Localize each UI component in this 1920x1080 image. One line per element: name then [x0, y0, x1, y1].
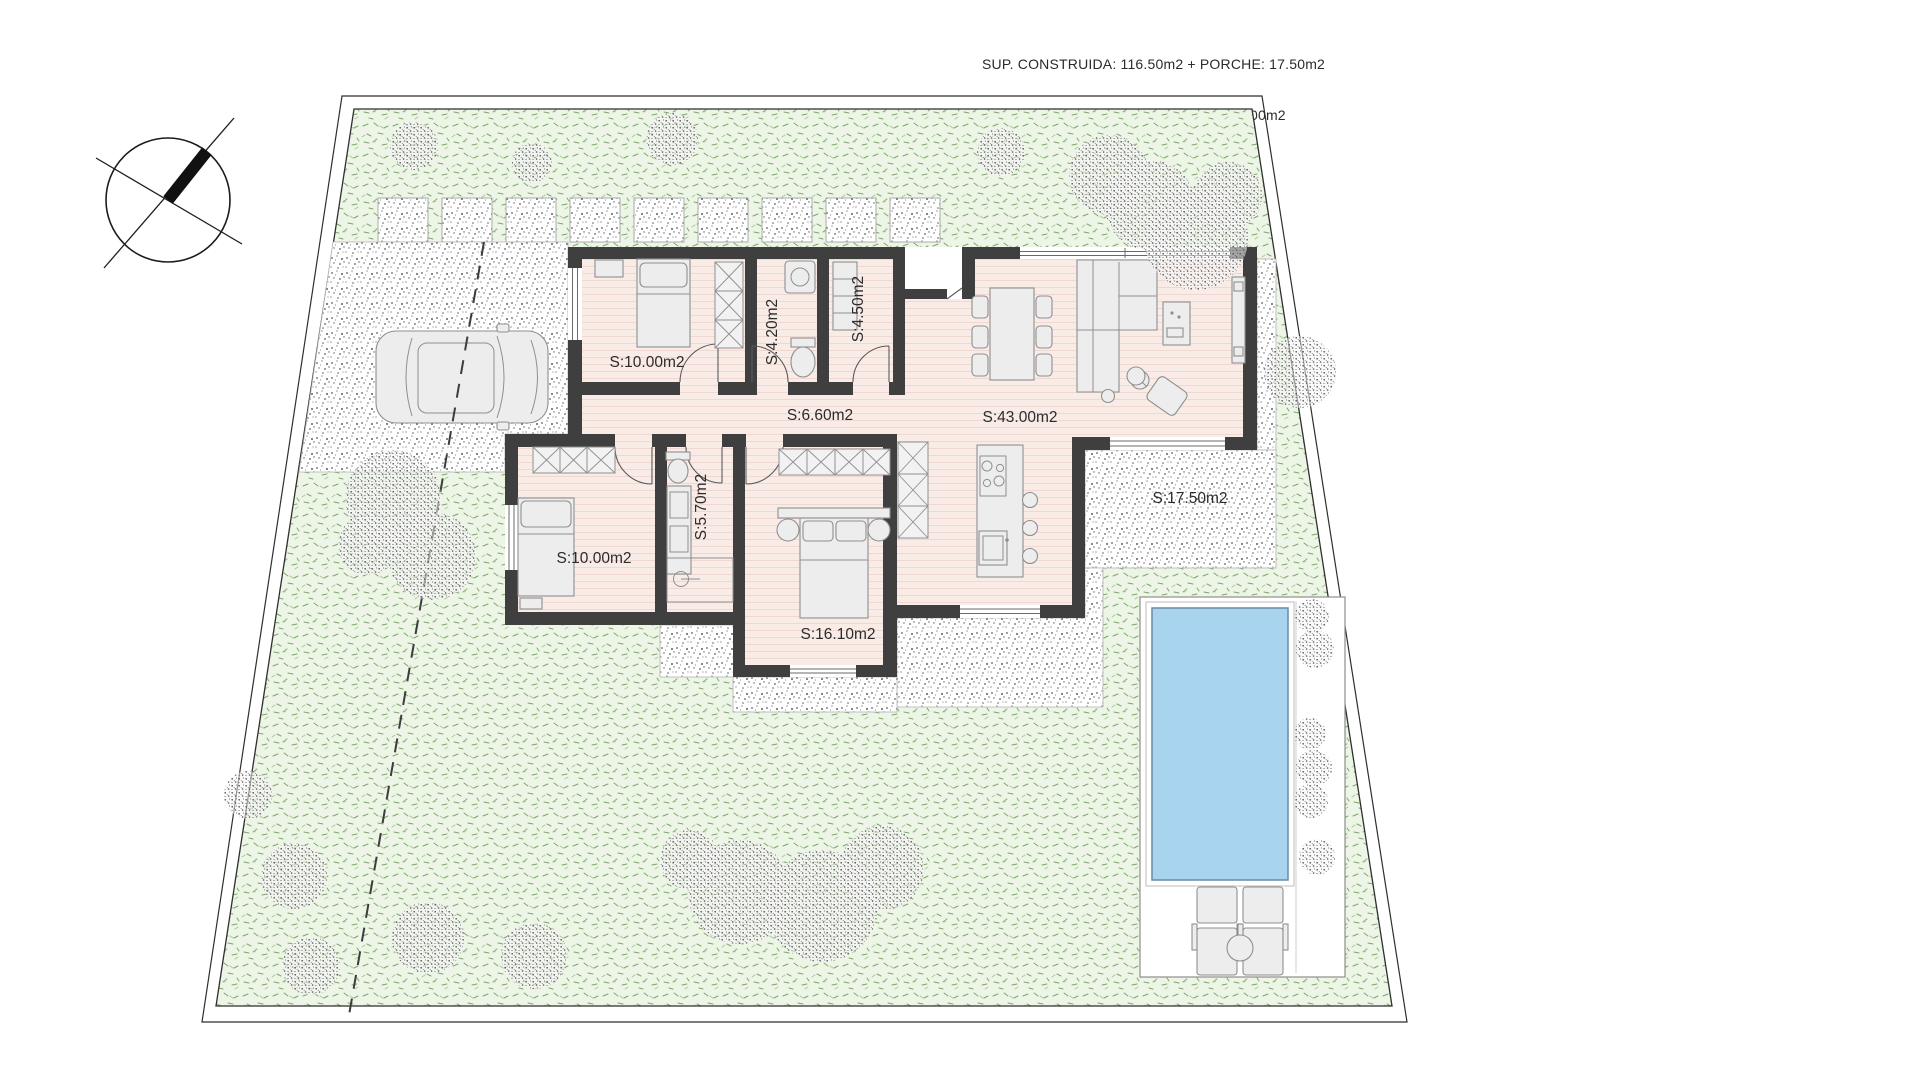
stepping-stone	[890, 198, 940, 242]
room-label-master-bedroom: S:16.10m2	[801, 626, 876, 643]
bedside-table	[777, 519, 799, 541]
pillow	[521, 501, 571, 527]
tree	[338, 515, 398, 575]
wardrobe	[779, 449, 890, 475]
bush	[1296, 630, 1334, 668]
nightstand	[520, 598, 542, 609]
stepping-stone	[442, 198, 492, 242]
sun-lounger	[1197, 887, 1237, 923]
entrance-recess	[905, 247, 962, 289]
vanity-counter	[667, 486, 691, 574]
stepping-stone	[634, 198, 684, 242]
stepping-stone	[378, 198, 428, 242]
room-label-bathroom-1: S:4.20m2	[764, 299, 781, 365]
bush	[1294, 784, 1328, 818]
window	[505, 505, 518, 570]
site-plan-page: SUP. CONSTRUIDA: 116.50m2 + PORCHE: 17.5…	[0, 0, 1920, 1080]
car	[376, 324, 548, 430]
car-mirror	[497, 324, 509, 332]
bar-stool	[1023, 549, 1038, 564]
wardrobe	[533, 447, 615, 473]
dining-chair	[1036, 354, 1052, 376]
bar-stool	[1023, 521, 1038, 536]
nightstand	[595, 260, 623, 277]
master-terrace	[733, 677, 897, 712]
tree	[977, 128, 1025, 176]
room-label-bedroom-1: S:10.00m2	[610, 354, 685, 371]
side-table	[1102, 390, 1115, 403]
window	[960, 605, 1040, 618]
sink	[785, 261, 815, 293]
swimming-pool	[1152, 608, 1288, 880]
tree	[392, 902, 464, 974]
tree	[1264, 336, 1336, 408]
dining-chair	[972, 326, 988, 348]
pool-side-table	[1227, 935, 1253, 961]
dining-table	[990, 288, 1034, 380]
tree	[224, 771, 272, 819]
wardrobe	[715, 262, 743, 348]
west-terrace	[660, 625, 745, 677]
bush	[1295, 599, 1329, 633]
car-mirror	[497, 422, 509, 430]
toilet	[791, 338, 815, 347]
dining-chair	[972, 296, 988, 318]
stepping-stone-path	[378, 198, 940, 242]
sun-lounger	[1243, 887, 1283, 923]
window	[1110, 437, 1225, 450]
room-label-bedroom-2: S:10.00m2	[557, 550, 632, 567]
window	[790, 665, 856, 677]
headboard	[778, 508, 890, 518]
dining-chair	[1036, 296, 1052, 318]
bedside-table	[868, 519, 890, 541]
room-label-porch: S:17.50m2	[1153, 490, 1228, 507]
room-label-living: S:43.00m2	[983, 409, 1058, 426]
tree	[512, 143, 552, 183]
pillow	[803, 521, 833, 541]
stepping-stone	[570, 198, 620, 242]
pillow	[640, 263, 687, 287]
room-label-hallway: S:6.60m2	[787, 407, 853, 424]
stepping-stone	[698, 198, 748, 242]
tree	[388, 512, 476, 600]
tree	[390, 122, 438, 170]
tree	[282, 937, 340, 995]
tree	[646, 113, 698, 165]
room-label-bathroom-2: S:5.70m2	[693, 474, 710, 540]
tree	[501, 923, 567, 989]
pillow	[836, 521, 866, 541]
stepping-stone	[506, 198, 556, 242]
north-compass	[96, 118, 242, 268]
tree	[840, 826, 924, 910]
north-needle	[168, 151, 207, 200]
pool-area	[1140, 597, 1345, 977]
porch-paving	[1085, 450, 1276, 568]
bush	[1299, 839, 1335, 875]
bush	[1296, 750, 1332, 786]
bush	[1294, 718, 1326, 750]
dining-chair	[1036, 326, 1052, 348]
car-body	[376, 331, 548, 423]
stepping-stone	[762, 198, 812, 242]
bar-stool	[1023, 493, 1038, 508]
tree	[660, 830, 720, 890]
dining-chair	[972, 354, 988, 376]
tree	[1194, 162, 1262, 230]
side-table	[1127, 367, 1145, 385]
room-label-laundry: S:4.50m2	[850, 276, 867, 342]
window	[568, 268, 582, 340]
media-stand	[1163, 302, 1190, 345]
stepping-stone	[826, 198, 876, 242]
kitchen-tall-cabinets	[898, 442, 928, 538]
site-svg: S:10.00m2 S:4.20m2 S:4.50m2 S:6.60m2 S:4…	[0, 0, 1920, 1080]
tree	[261, 843, 327, 909]
